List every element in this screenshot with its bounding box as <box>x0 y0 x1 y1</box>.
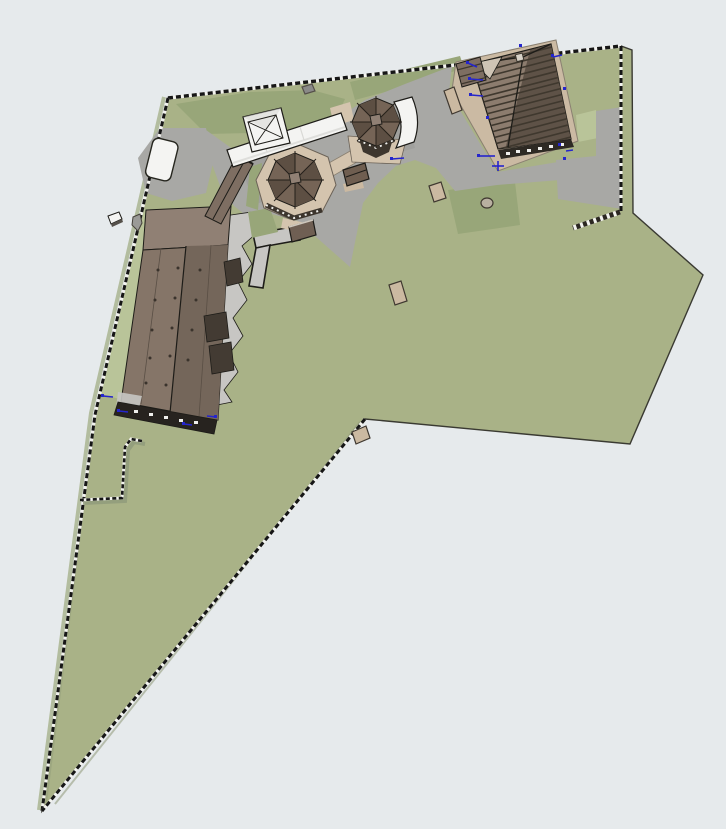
house-chimney <box>515 53 523 61</box>
round-planter <box>481 198 493 208</box>
pavilion-b-cupola <box>370 114 382 126</box>
model-viewport[interactable] <box>0 0 726 829</box>
pavilion-a-cupola <box>289 172 301 184</box>
site-plan-canvas[interactable] <box>0 0 726 829</box>
